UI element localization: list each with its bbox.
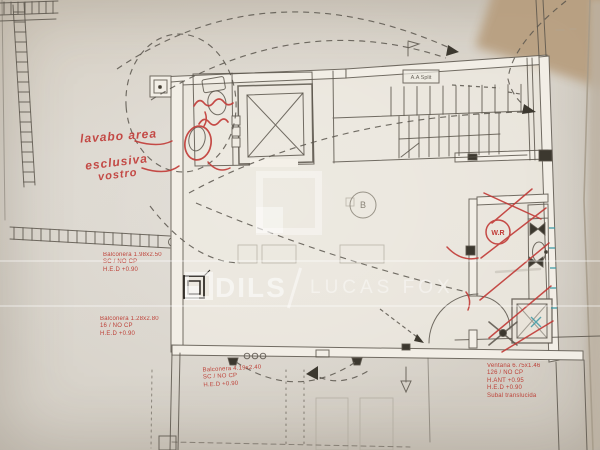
watermark-hairline [0,305,600,307]
note-line: H.ANT +0.95 [487,378,540,385]
balcony-details [151,358,430,450]
printed-note-window: Ventana 6.75x1.46 126 / NO CP H.ANT +0.9… [487,363,540,400]
terrace-railing-ladder [13,3,35,187]
note-line: 16 / NO CP [100,323,159,330]
aa-split-label: A.A Split [411,75,432,81]
terrace-railing-bottom [10,227,178,248]
terrace-edge-lower [170,353,180,450]
printed-note-balcony-1: Balconera 1.98x2.50 SC / NO CP H.E.D +0.… [103,252,162,274]
wall-unit-icon [539,150,552,161]
note-line: H.E.D +0.90 [100,331,159,338]
watermark-hairline [0,260,600,262]
terrace-railing-top [0,1,58,21]
down-arrow-icon [401,367,411,392]
sheet-left-edge [2,0,5,220]
wr-label: W.R [491,230,504,237]
stair-letter: B [360,200,366,210]
note-line: Subal translucida [487,393,540,400]
red-connector [135,141,172,145]
note-line: Balconera 1.28x2.80 [100,316,159,323]
note-line: H.E.D +0.90 [487,385,540,392]
printed-note-balcony-2: Balconera 1.28x2.80 16 / NO CP H.E.D +0.… [100,316,159,338]
sheet-right-edge [584,0,593,450]
window-sensor-icon [228,358,238,365]
photo-of-floor-plan: A.A Split B W.R Balconera 1.98x2.50 SC /… [0,0,600,450]
printed-note-balcony-3: Balconera 4.19x2.40 SC / NO CP H.E.D +0.… [202,364,262,389]
note-line: Balconera 1.98x2.50 [103,252,162,259]
note-line: H.E.D +0.90 [103,267,162,274]
note-line: Ventana 6.75x1.46 [487,363,540,370]
note-line: 126 / NO CP [487,370,540,377]
flag-marker-icon [408,41,419,56]
watermark-logo-large-fill [256,207,283,233]
watermark-logo-small-fill [185,286,199,300]
